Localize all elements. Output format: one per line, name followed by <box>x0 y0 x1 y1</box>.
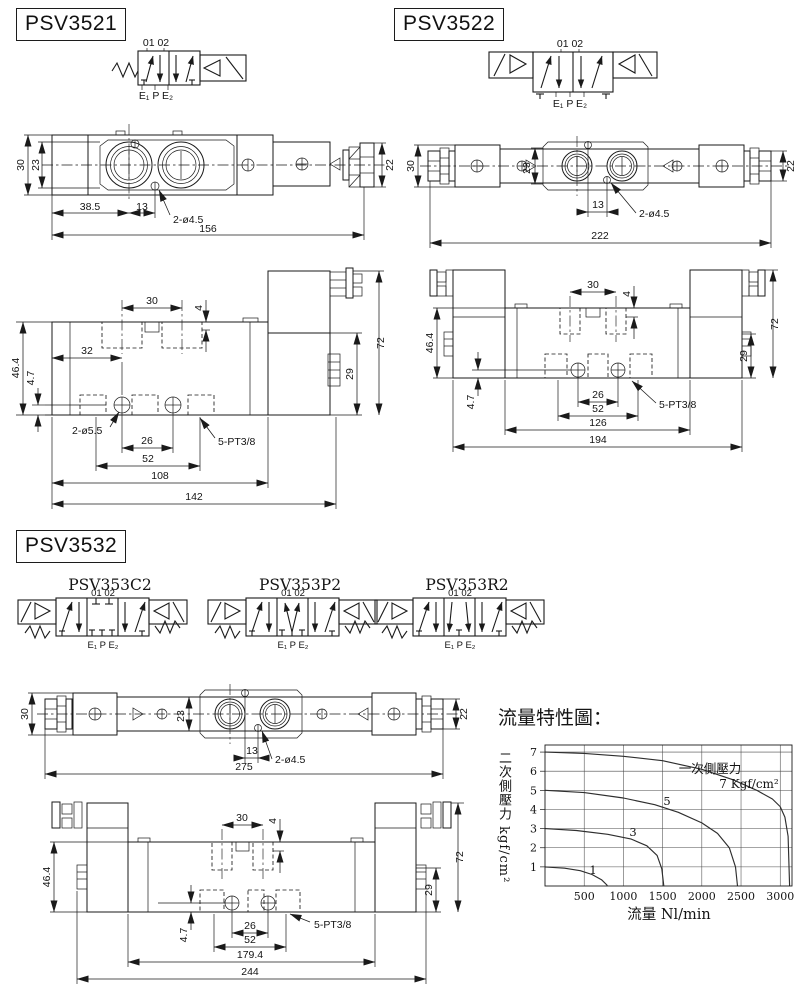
valve-body <box>56 598 149 636</box>
psv353c2-valve-symbol: PSV353C2 01 <box>15 578 200 663</box>
dim-total-height: 72 <box>375 337 387 349</box>
dim-hole-drop: 4.7 <box>178 928 190 943</box>
solenoid-right-icon <box>149 600 187 633</box>
dim-end-height: 22 <box>458 708 470 720</box>
solenoid-outline <box>268 268 362 415</box>
dim-holes-label: 2-ø4.5 <box>639 208 670 220</box>
dim-slot-depth: 4 <box>621 291 633 297</box>
centerlines <box>222 829 263 882</box>
y-tick-labels: 1234567 <box>530 746 537 874</box>
solenoid-right-icon <box>506 600 544 633</box>
y-tick-label: 4 <box>530 803 537 816</box>
dim-ports-label: 5-PT3/8 <box>314 919 352 931</box>
valve-body <box>533 52 613 99</box>
dim-inner-height: 23 <box>30 159 42 171</box>
valve-body-outline <box>45 318 268 415</box>
centerlines <box>570 296 616 342</box>
ports-top-label: 01 02 <box>557 38 583 50</box>
ports-top-label: 01 02 <box>448 588 472 599</box>
y-tick-label: 1 <box>530 861 537 874</box>
dim-coil-height: 29 <box>344 368 356 380</box>
dim-slot-depth: 4 <box>267 818 279 824</box>
valve-body <box>138 51 200 85</box>
dim-body-height: 46.4 <box>10 358 22 379</box>
valve-body <box>413 598 506 636</box>
psv3521-front-view-drawing: 30 4 46.4 4.7 32 2-ø5.5 26 52 108 142 5-… <box>10 262 400 510</box>
ports-top-label: 01 02 <box>91 588 115 599</box>
legend-title: 一次側壓力 <box>679 761 742 776</box>
psv3521-valve-symbol: 01 02 E₁ P E₂ <box>100 33 265 103</box>
dim-port-pitch: 26 <box>141 435 153 447</box>
dim-total-length: 156 <box>199 223 217 235</box>
dim-port-span: 52 <box>592 403 604 415</box>
solenoid-right-icon <box>613 52 657 78</box>
solenoid-left-icon <box>375 600 413 638</box>
dim-hole-drop: 4.7 <box>25 371 37 386</box>
port-stems <box>556 49 584 97</box>
y-tick-label: 5 <box>530 784 537 797</box>
dim-hole-drop: 4.7 <box>465 395 477 410</box>
dim-hole1-offset: 32 <box>81 345 93 357</box>
dim-slot-pitch: 30 <box>146 295 158 307</box>
psv353r2-valve-symbol: PSV353R2 01 02 E₁ P E₂ <box>372 578 557 663</box>
dim-body-length: 179.4 <box>237 949 263 961</box>
solenoid-left-icon <box>489 52 533 78</box>
legend-value: 7 Kgf/cm² <box>719 777 779 791</box>
dim-total-height: 72 <box>454 851 466 863</box>
x-axis-label: 流量 Nl/min <box>627 906 711 923</box>
curve-5 <box>545 790 738 886</box>
dim-end-height: 22 <box>384 159 396 171</box>
dim-hole-offset: 13 <box>136 201 148 213</box>
model-title-psv3532: PSV3532 <box>16 530 126 563</box>
x-tick-label: 3000 <box>766 890 794 903</box>
solenoid-right-outline <box>690 270 765 378</box>
curves <box>545 752 790 886</box>
dim-total-length: 142 <box>185 491 203 503</box>
dim-port-pitch: 26 <box>244 920 256 932</box>
ports-top-label: 01 02 <box>143 37 169 49</box>
dim-total-length: 222 <box>591 230 609 242</box>
valve-body-outline <box>52 131 273 195</box>
dim-coil-height: 29 <box>738 350 750 362</box>
solenoid-icon <box>200 55 246 81</box>
dim-coil-height: 29 <box>423 884 435 896</box>
solenoid-left-icon <box>208 600 246 638</box>
dim-height: 30 <box>405 160 417 172</box>
flow-characteristic-chart: 流量特性圖： 50010001500200025003000 1234567 一… <box>488 696 800 938</box>
psv3522-valve-symbol: 01 02 E₁ P E₂ <box>486 36 691 110</box>
chart-title: 流量特性圖： <box>498 707 612 729</box>
dim-end-height: 22 <box>785 160 797 172</box>
dim-body-length: 126 <box>589 417 607 429</box>
y-tick-label: 2 <box>530 842 537 855</box>
dim-slot-pitch: 30 <box>236 812 248 824</box>
dim-inner-height: 23 <box>175 710 187 722</box>
dim-height: 30 <box>15 159 27 171</box>
ports-bottom-label: E₁ P E₂ <box>139 90 173 102</box>
solenoid-right-outline <box>375 802 451 912</box>
dim-port-pitch: 26 <box>592 389 604 401</box>
ports-bottom-label: E₁ P E₂ <box>87 640 118 651</box>
dim-hole-offset: 13 <box>592 199 604 211</box>
psv3522-top-view-drawing: 30 23 13 2-ø4.5 222 22 <box>402 118 800 256</box>
spring-icon <box>112 63 138 77</box>
dim-total-length: 194 <box>589 434 607 446</box>
dim-total-length: 275 <box>235 761 253 773</box>
ports-bottom-label: E₁ P E₂ <box>553 98 587 110</box>
dim-port-span: 52 <box>244 934 256 946</box>
datasheet-page: PSV3521 PSV3522 PSV3532 01 02 E₁ P E₂ <box>0 0 800 997</box>
dim-port1-offset: 38.5 <box>80 201 101 213</box>
curve-label-3: 3 <box>629 825 636 839</box>
y-tick-label: 3 <box>530 823 537 836</box>
dim-height: 30 <box>19 708 31 720</box>
dim-total-length: 244 <box>241 966 259 978</box>
ports-top-label: 01 02 <box>281 588 305 599</box>
psv3521-top-view-drawing: 30 23 38.5 13 2-ø4.5 156 22 <box>12 122 397 247</box>
valve-body <box>246 598 339 636</box>
dim-holes-label: 2-ø4.5 <box>275 754 306 766</box>
solenoid-left-outline <box>52 802 128 912</box>
x-tick-label: 1000 <box>609 890 637 903</box>
ports-bottom-label: E₁ P E₂ <box>277 640 308 651</box>
psv353p2-valve-symbol: PSV353P2 01 <box>205 578 390 663</box>
dim-body-length: 108 <box>151 470 169 482</box>
y-axis-label: 二次側壓力 kgf/cm² <box>494 751 513 889</box>
psv3532-top-view-drawing: 30 23 13 2-ø4.5 275 22 <box>12 668 482 780</box>
ports-bottom-label: E₁ P E₂ <box>444 640 475 651</box>
dim-body-height: 46.4 <box>41 867 53 888</box>
dim-body-height: 46.4 <box>424 333 436 354</box>
x-tick-label: 1500 <box>649 890 677 903</box>
x-tick-label: 500 <box>574 890 595 903</box>
dim-holes-label: 2-ø5.5 <box>72 425 103 437</box>
solenoid-outline <box>273 142 374 187</box>
x-tick-label: 2500 <box>727 890 755 903</box>
valve-body-outline <box>128 838 375 912</box>
dim-slot-depth: 4 <box>193 305 205 311</box>
psv3522-front-view-drawing: 30 4 46.4 4.7 26 52 126 194 5-PT3/8 29 7… <box>420 256 800 468</box>
dim-slot-pitch: 30 <box>587 279 599 291</box>
x-tick-label: 2000 <box>688 890 716 903</box>
dim-total-height: 72 <box>769 318 781 330</box>
dim-inner-height: 23 <box>521 162 533 174</box>
dim-port-span: 52 <box>142 453 154 465</box>
solenoid-left-outline <box>430 270 505 378</box>
dim-ports-label: 5-PT3/8 <box>659 399 697 411</box>
curve-label-1: 1 <box>589 863 596 877</box>
curve-3 <box>545 829 664 886</box>
port-stems <box>142 48 168 90</box>
curve-label-5: 5 <box>663 794 670 808</box>
psv3532-front-view-drawing: 30 4 46.4 4.7 26 52 179.4 244 5-PT3/8 29… <box>8 787 498 997</box>
dim-hole-offset: 13 <box>246 745 258 757</box>
y-tick-label: 6 <box>530 765 537 778</box>
y-tick-label: 7 <box>530 746 537 759</box>
curve-7 <box>545 752 790 886</box>
solenoid-left-icon <box>18 600 56 638</box>
curve-1 <box>545 867 607 886</box>
plot-border <box>545 745 792 886</box>
grid <box>540 745 792 886</box>
dim-ports-label: 5-PT3/8 <box>218 436 256 448</box>
x-tick-labels: 50010001500200025003000 <box>574 890 795 903</box>
